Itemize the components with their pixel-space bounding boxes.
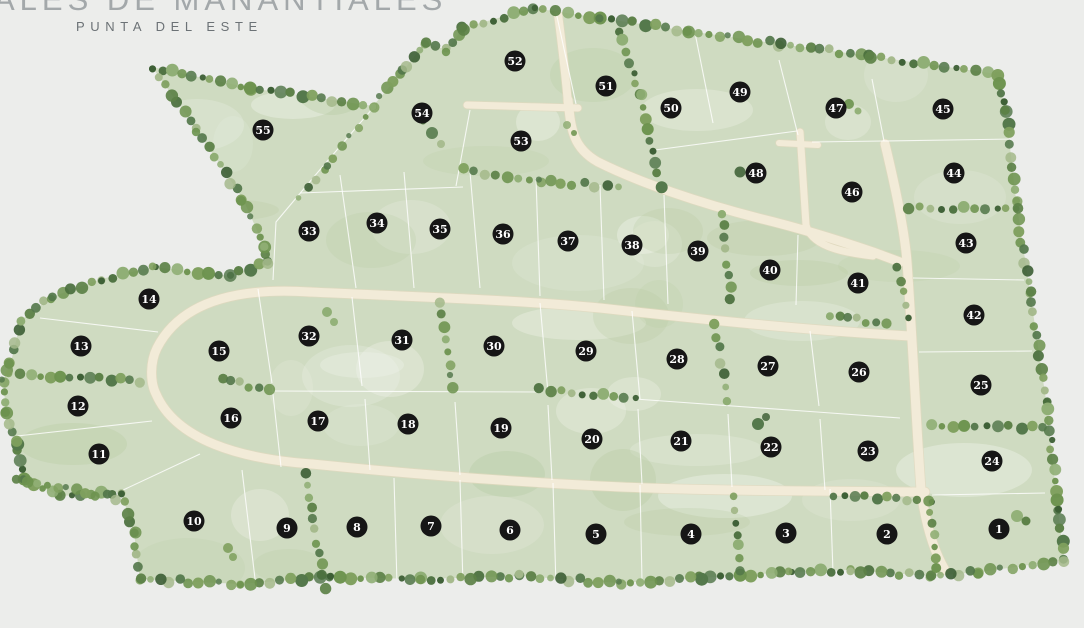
svg-text:48: 48 [748, 167, 764, 180]
lot-marker-35[interactable]: 35 [430, 219, 451, 240]
lot-marker-4[interactable]: 4 [681, 524, 702, 545]
svg-text:47: 47 [828, 102, 843, 115]
svg-text:9: 9 [283, 522, 291, 535]
lot-marker-54[interactable]: 54 [412, 103, 433, 124]
svg-text:36: 36 [495, 228, 511, 241]
svg-text:22: 22 [763, 441, 778, 454]
svg-text:49: 49 [732, 86, 747, 99]
lot-marker-47[interactable]: 47 [826, 98, 847, 119]
lot-marker-29[interactable]: 29 [576, 341, 597, 362]
svg-text:32: 32 [301, 330, 316, 343]
masterplan-svg: 1234567891011121314151617181920212223242… [0, 0, 1084, 628]
lot-marker-16[interactable]: 16 [221, 408, 242, 429]
svg-text:24: 24 [984, 455, 1000, 468]
svg-text:7: 7 [427, 520, 435, 533]
svg-text:16: 16 [223, 412, 239, 425]
lot-marker-40[interactable]: 40 [760, 260, 781, 281]
lot-marker-46[interactable]: 46 [842, 182, 863, 203]
svg-text:51: 51 [598, 80, 613, 93]
svg-text:37: 37 [560, 235, 575, 248]
lot-marker-7[interactable]: 7 [421, 516, 442, 537]
svg-text:44: 44 [946, 167, 962, 180]
svg-text:35: 35 [432, 223, 447, 236]
lot-marker-37[interactable]: 37 [558, 231, 579, 252]
lot-marker-20[interactable]: 20 [582, 429, 603, 450]
svg-text:8: 8 [353, 521, 361, 534]
lot-marker-27[interactable]: 27 [758, 356, 779, 377]
svg-text:28: 28 [669, 353, 685, 366]
lot-marker-39[interactable]: 39 [688, 241, 709, 262]
lot-marker-52[interactable]: 52 [505, 51, 526, 72]
lot-marker-30[interactable]: 30 [484, 336, 505, 357]
lot-marker-5[interactable]: 5 [586, 524, 607, 545]
lot-marker-23[interactable]: 23 [858, 441, 879, 462]
lot-marker-9[interactable]: 9 [277, 518, 298, 539]
svg-text:46: 46 [844, 186, 860, 199]
svg-text:15: 15 [211, 345, 226, 358]
lot-marker-11[interactable]: 11 [89, 444, 110, 465]
lot-marker-25[interactable]: 25 [971, 375, 992, 396]
lot-marker-6[interactable]: 6 [500, 520, 521, 541]
lot-marker-34[interactable]: 34 [367, 213, 388, 234]
svg-text:38: 38 [624, 239, 640, 252]
lot-marker-10[interactable]: 10 [184, 511, 205, 532]
svg-text:6: 6 [506, 524, 514, 537]
lot-marker-8[interactable]: 8 [347, 517, 368, 538]
lot-marker-26[interactable]: 26 [849, 362, 870, 383]
svg-text:25: 25 [973, 379, 988, 392]
svg-text:18: 18 [400, 418, 416, 431]
svg-text:53: 53 [513, 135, 528, 148]
svg-text:2: 2 [883, 528, 891, 541]
svg-text:11: 11 [91, 448, 106, 461]
svg-text:31: 31 [394, 334, 409, 347]
svg-text:29: 29 [578, 345, 593, 358]
svg-text:41: 41 [850, 277, 865, 290]
svg-text:27: 27 [760, 360, 775, 373]
svg-text:30: 30 [486, 340, 502, 353]
lot-marker-41[interactable]: 41 [848, 273, 869, 294]
svg-text:39: 39 [690, 245, 705, 258]
lot-marker-55[interactable]: 55 [253, 120, 274, 141]
svg-text:23: 23 [860, 445, 875, 458]
lot-marker-13[interactable]: 13 [71, 336, 92, 357]
lot-marker-51[interactable]: 51 [596, 76, 617, 97]
svg-text:52: 52 [507, 55, 522, 68]
lot-marker-17[interactable]: 17 [308, 411, 329, 432]
lot-marker-44[interactable]: 44 [944, 163, 965, 184]
svg-text:12: 12 [70, 400, 85, 413]
lot-marker-42[interactable]: 42 [964, 305, 985, 326]
svg-text:13: 13 [73, 340, 88, 353]
svg-text:14: 14 [141, 293, 157, 306]
lot-marker-22[interactable]: 22 [761, 437, 782, 458]
lot-marker-50[interactable]: 50 [661, 98, 682, 119]
svg-text:20: 20 [584, 433, 600, 446]
lot-marker-1[interactable]: 1 [989, 519, 1010, 540]
lot-marker-49[interactable]: 49 [730, 82, 751, 103]
svg-text:19: 19 [493, 422, 508, 435]
lot-marker-24[interactable]: 24 [982, 451, 1003, 472]
lot-marker-43[interactable]: 43 [956, 233, 977, 254]
svg-text:26: 26 [851, 366, 867, 379]
svg-text:42: 42 [966, 309, 981, 322]
lot-marker-14[interactable]: 14 [139, 289, 160, 310]
lot-marker-31[interactable]: 31 [392, 330, 413, 351]
lot-marker-3[interactable]: 3 [776, 523, 797, 544]
lot-marker-38[interactable]: 38 [622, 235, 643, 256]
map-canvas: ALES DE MANANTIALES PUNTA DEL ESTE 12345… [0, 0, 1084, 628]
lot-marker-45[interactable]: 45 [933, 99, 954, 120]
lot-marker-53[interactable]: 53 [511, 131, 532, 152]
svg-text:17: 17 [310, 415, 325, 428]
lot-marker-15[interactable]: 15 [209, 341, 230, 362]
svg-text:45: 45 [935, 103, 950, 116]
svg-text:54: 54 [414, 107, 430, 120]
lot-marker-33[interactable]: 33 [299, 221, 320, 242]
svg-text:40: 40 [762, 264, 778, 277]
svg-text:43: 43 [958, 237, 973, 250]
svg-text:4: 4 [687, 528, 695, 541]
lot-marker-18[interactable]: 18 [398, 414, 419, 435]
lot-marker-2[interactable]: 2 [877, 524, 898, 545]
svg-text:10: 10 [186, 515, 202, 528]
svg-text:50: 50 [663, 102, 679, 115]
lot-marker-19[interactable]: 19 [491, 418, 512, 439]
lot-marker-28[interactable]: 28 [667, 349, 688, 370]
svg-text:55: 55 [255, 124, 270, 137]
svg-text:1: 1 [995, 523, 1003, 536]
svg-text:34: 34 [369, 217, 385, 230]
svg-text:5: 5 [592, 528, 600, 541]
lot-marker-12[interactable]: 12 [68, 396, 89, 417]
lot-marker-36[interactable]: 36 [493, 224, 514, 245]
svg-text:21: 21 [673, 435, 688, 448]
svg-text:33: 33 [301, 225, 316, 238]
svg-text:3: 3 [782, 527, 790, 540]
lot-marker-48[interactable]: 48 [746, 163, 767, 184]
lot-marker-32[interactable]: 32 [299, 326, 320, 347]
lot-marker-21[interactable]: 21 [671, 431, 692, 452]
